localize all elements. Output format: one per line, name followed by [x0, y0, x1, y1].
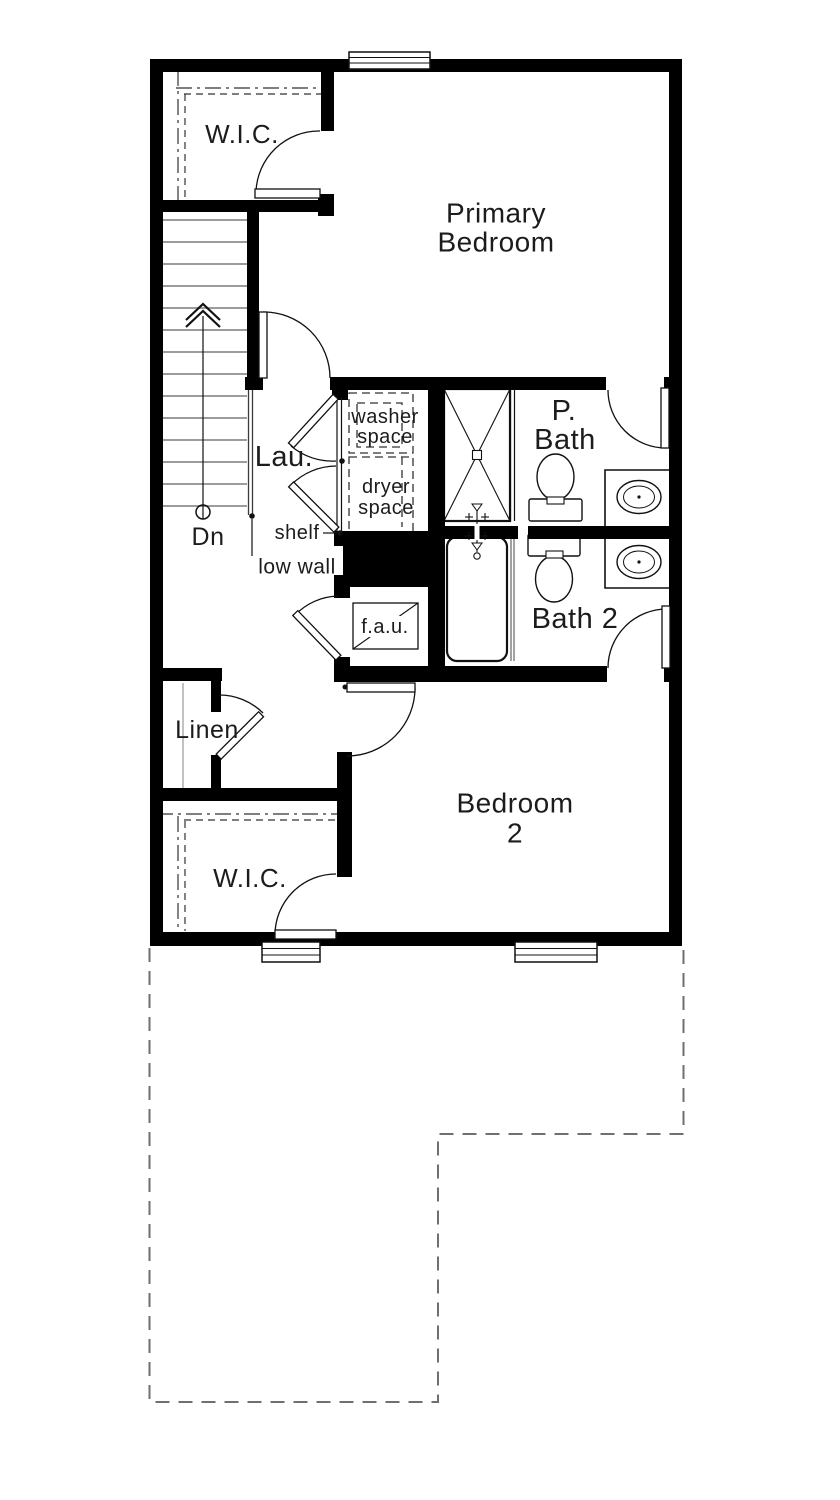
- bath2-bottom-wall: [445, 666, 607, 682]
- stair-low-wall: [249, 390, 253, 515]
- exterior-wall-left: [150, 59, 163, 946]
- tub-surround-line: [511, 537, 514, 661]
- stair-right-wall: [247, 210, 259, 390]
- door-p-bath: [608, 388, 669, 448]
- floor-plan-svg: W.I.C. Primary Bedroom Lau. washer space…: [0, 0, 840, 1500]
- hall-bottom-wall: [150, 788, 352, 801]
- tub-drain-icon: [474, 553, 480, 559]
- floor-plan-page: W.I.C. Primary Bedroom Lau. washer space…: [0, 0, 840, 1500]
- fau-bottom-wall: [334, 666, 445, 682]
- toilet-bowl: [537, 454, 574, 500]
- label-dryer-space-line1: dryer: [362, 476, 410, 498]
- room-label-p-bath-line1: P.: [552, 395, 577, 427]
- staircase: [163, 220, 253, 519]
- toilet-bowl: [536, 556, 573, 602]
- room-label-primary-bedroom-line2: Bedroom: [437, 227, 554, 258]
- exterior-wall-bottom: [150, 932, 682, 946]
- label-fau: f.a.u.: [361, 616, 408, 638]
- sink-drain-icon: [637, 560, 640, 563]
- room-label-laundry: Lau.: [255, 441, 313, 473]
- annotation-low-wall: low wall: [258, 556, 336, 579]
- wic-primary-bottom-wall: [150, 200, 325, 212]
- door-bedroom2: [347, 683, 415, 756]
- room-label-linen: Linen: [175, 716, 239, 744]
- walls: [150, 59, 682, 946]
- door-primary-suite: [259, 312, 330, 378]
- chase-wall-block: [343, 546, 445, 587]
- annotation-shelf: shelf: [275, 522, 320, 544]
- annotation-stairs-down: Dn: [192, 523, 225, 551]
- stair-treads: [163, 220, 247, 506]
- wic-bedroom2-corner-block: [334, 933, 352, 946]
- room-label-wic-primary: W.I.C.: [205, 119, 279, 149]
- bath2-fixtures: [447, 534, 669, 661]
- toilet-seat-hinge-icon: [547, 497, 564, 504]
- room-label-primary-bedroom-line1: Primary: [446, 198, 546, 229]
- toilet-seat-hinge-icon: [546, 551, 563, 558]
- bedroom2-door-jamb: [337, 752, 352, 783]
- label-dryer-space-line2: space: [358, 497, 414, 519]
- wic-bedroom2-right-wall: [337, 783, 352, 877]
- shower-drain-icon: [473, 451, 482, 460]
- window-wic-bedroom2: [262, 942, 320, 962]
- exterior-wall-right: [669, 59, 682, 946]
- bath-divider-wall-right: [528, 526, 682, 539]
- linen-right-wall-lower: [211, 755, 221, 788]
- room-label-bedroom2-line1: Bedroom: [456, 788, 573, 819]
- room-label-p-bath-line2: Bath: [534, 424, 596, 456]
- lower-floor-footprint-outline: [150, 948, 684, 1402]
- shower-glass-panel: [511, 389, 515, 521]
- room-label-bedroom2-line2: 2: [507, 818, 523, 849]
- primary-suite-dividing-wall: [330, 377, 606, 390]
- stair-direction-line: [186, 304, 220, 519]
- bath-divider-wall-left: [430, 526, 518, 539]
- label-washer-space-line1: washer: [350, 406, 418, 428]
- room-label-bath2: Bath 2: [532, 603, 619, 635]
- label-washer-space-line2: space: [357, 426, 413, 448]
- window-bedroom2: [515, 942, 597, 962]
- wic-primary-right-wall: [321, 59, 334, 131]
- sink-drain-icon: [637, 495, 640, 498]
- stair-wall-cap: [245, 377, 263, 390]
- room-label-wic-bedroom2: W.I.C.: [213, 863, 287, 893]
- laundry-bottom-wall: [334, 531, 445, 546]
- window-primary-bedroom: [349, 52, 430, 69]
- linen-right-wall-upper: [211, 668, 221, 712]
- fau-jamb-top: [334, 575, 350, 598]
- door-fau: [293, 596, 341, 660]
